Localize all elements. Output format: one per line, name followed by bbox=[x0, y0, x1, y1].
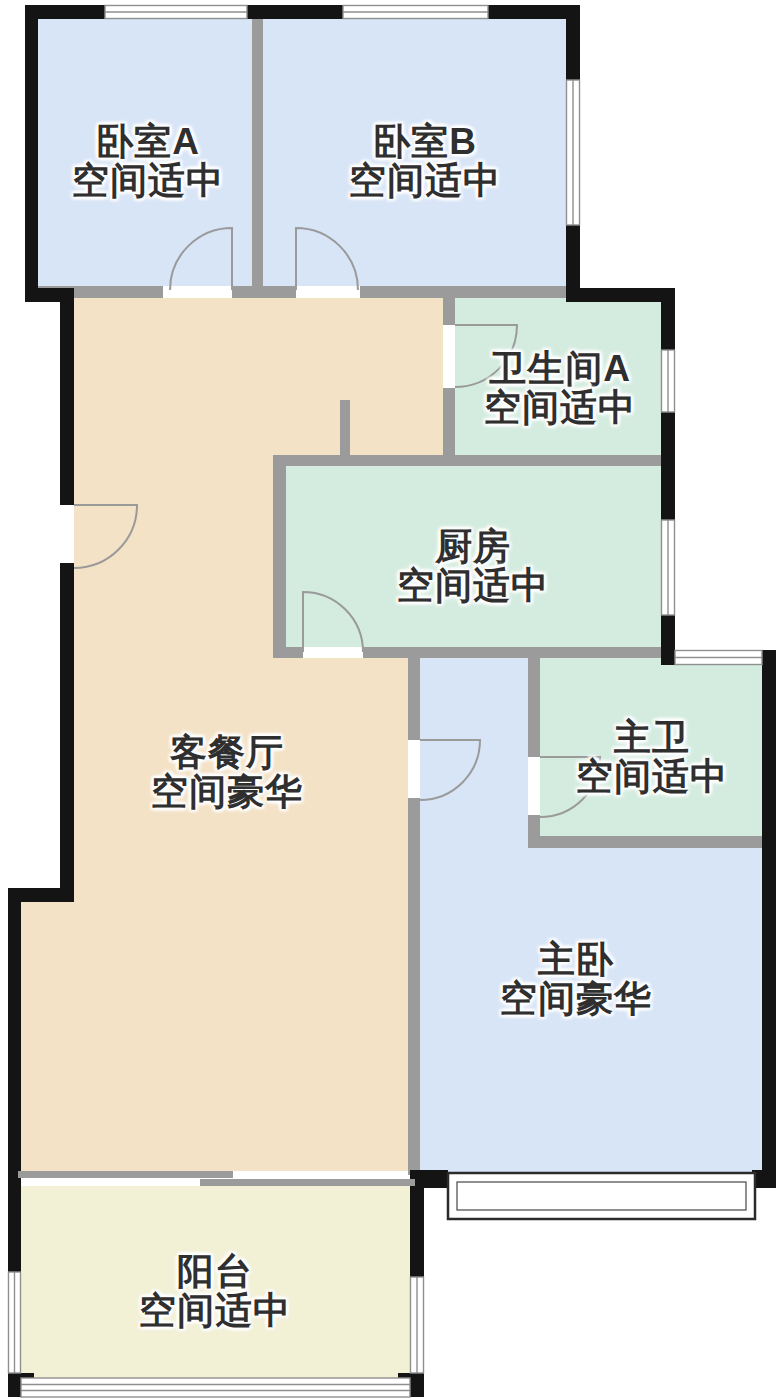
room-label-balcony: 阳台 空间适中 bbox=[139, 1252, 291, 1330]
wall-east-bedroom-b-1 bbox=[566, 5, 580, 80]
room-size-label: 空间豪华 bbox=[151, 772, 303, 811]
wall-east-3 bbox=[661, 615, 675, 665]
room-name: 卧室B bbox=[349, 122, 501, 161]
room-size-label: 空间豪华 bbox=[500, 979, 652, 1018]
opening-bedroom-b bbox=[296, 286, 360, 298]
room-name: 阳台 bbox=[139, 1252, 291, 1291]
sliding-panel-1 bbox=[18, 1171, 233, 1178]
opening-entry bbox=[60, 505, 74, 563]
wall-step-bedroom-b-bath-a bbox=[566, 288, 675, 302]
room-label-bedroom-a: 卧室A 空间适中 bbox=[72, 122, 224, 200]
opening-master-bath bbox=[528, 757, 540, 815]
room-label-master-bedroom: 主卧 空间豪华 bbox=[500, 940, 652, 1018]
wall-bedrooms-south-3 bbox=[360, 286, 566, 298]
bay-window bbox=[448, 1173, 755, 1219]
room-size-label: 空间适中 bbox=[576, 757, 728, 796]
room-name: 主卫 bbox=[576, 718, 728, 757]
room-name: 卫生间A bbox=[484, 349, 636, 388]
room-size-label: 空间适中 bbox=[397, 566, 549, 605]
sliding-panel-2 bbox=[200, 1179, 415, 1186]
wall-kitchen-north bbox=[273, 455, 661, 466]
room-label-kitchen: 厨房 空间适中 bbox=[397, 527, 549, 605]
opening-master-bedroom bbox=[408, 740, 420, 798]
wall-bathroom-a-west-2 bbox=[443, 388, 455, 466]
room-label-bedroom-b: 卧室B 空间适中 bbox=[349, 122, 501, 200]
wall-kitchen-west bbox=[273, 455, 286, 658]
wall-stub-living bbox=[340, 400, 350, 458]
opening-bathroom-a bbox=[443, 325, 455, 387]
wall-bedroom-divider bbox=[252, 18, 263, 288]
wall-east-2 bbox=[661, 412, 675, 520]
room-size-label: 空间适中 bbox=[484, 388, 636, 427]
wall-east-1 bbox=[661, 288, 675, 350]
wall-west-living-2 bbox=[60, 563, 74, 890]
opening-kitchen bbox=[303, 647, 363, 658]
room-name: 厨房 bbox=[397, 527, 549, 566]
floorplan-canvas: 卧室A 空间适中 卧室B 空间适中 卫生间A 空间适中 厨房 空间适中 客餐厅 … bbox=[0, 0, 780, 1400]
wall-north-2 bbox=[247, 5, 343, 19]
wall-bathroom-a-west-1 bbox=[443, 286, 455, 325]
room-living-lower-fill bbox=[21, 890, 408, 1171]
wall-living-master-divider-2 bbox=[408, 798, 420, 1175]
wall-west-bedroom-a bbox=[25, 5, 38, 302]
room-label-living-dining: 客餐厅 空间豪华 bbox=[151, 733, 303, 811]
wall-master-bath-south bbox=[528, 836, 762, 848]
wall-kitchen-south-1 bbox=[273, 647, 303, 658]
room-size-label: 空间适中 bbox=[72, 161, 224, 200]
wall-balcony-east bbox=[410, 1170, 424, 1277]
room-size-label: 空间适中 bbox=[349, 161, 501, 200]
floorplan-svg bbox=[0, 0, 780, 1400]
window-balcony-south bbox=[21, 1378, 410, 1397]
bay-window-outer bbox=[448, 1173, 755, 1219]
wall-living-master-divider-1 bbox=[408, 647, 420, 740]
wall-master-bath-west-1 bbox=[528, 658, 540, 757]
wall-bedrooms-south-2 bbox=[232, 286, 296, 298]
wall-west-living-1 bbox=[60, 293, 74, 505]
room-size-label: 空间适中 bbox=[139, 1291, 291, 1330]
room-name: 主卧 bbox=[500, 940, 652, 979]
room-label-master-bath: 主卫 空间适中 bbox=[576, 718, 728, 796]
room-name: 客餐厅 bbox=[151, 733, 303, 772]
room-label-bathroom-a: 卫生间A 空间适中 bbox=[484, 349, 636, 427]
wall-west-lower bbox=[8, 888, 21, 1272]
wall-kitchen-south-2 bbox=[363, 647, 661, 658]
room-name: 卧室A bbox=[72, 122, 224, 161]
wall-east-master bbox=[762, 650, 776, 1188]
opening-bedroom-a bbox=[163, 286, 232, 298]
